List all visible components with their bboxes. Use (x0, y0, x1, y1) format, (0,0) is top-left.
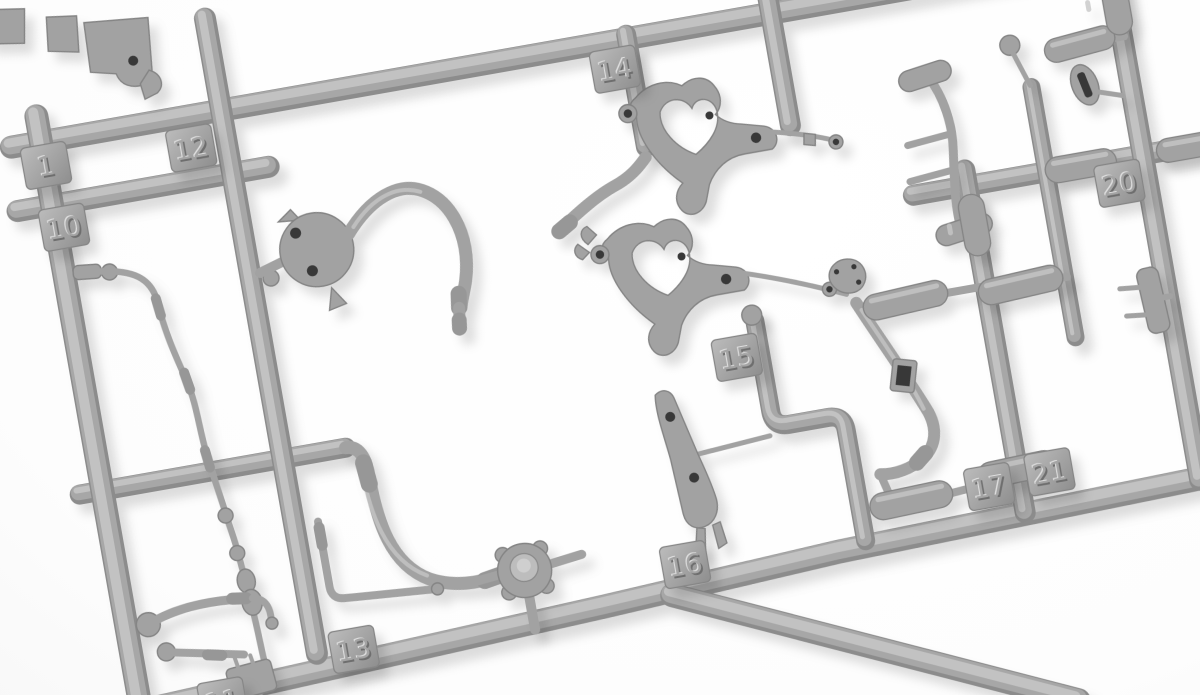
part-capsule (1042, 23, 1118, 65)
part-tag-13: 131313 (327, 625, 380, 674)
part-tag-16: 161616 (659, 540, 712, 589)
part-tag-15: 151515 (711, 333, 764, 382)
part-capsule (867, 478, 955, 522)
sprue-runner (752, 304, 866, 554)
part-top-right-disc (998, 33, 1030, 89)
part-flanged-disc-hose (250, 180, 479, 360)
part-j-pipe (346, 424, 505, 600)
parts-layer (0, 0, 1200, 695)
part-tag-17: 171717 (963, 462, 1016, 511)
part-tag-11: 111111 (196, 676, 249, 695)
part-corner-bracket (0, 0, 164, 125)
part-capsule (861, 278, 951, 323)
svg-text:20: 20 (1100, 166, 1140, 203)
part-tag-10: 101010 (38, 203, 91, 252)
part-tag-20: 202020 (1093, 159, 1146, 208)
runner-grid (0, 0, 1200, 695)
svg-text:12: 12 (171, 131, 211, 168)
photo-canvas: 1111010101212121313131414141515151616161… (0, 0, 1200, 695)
sprue-runner (1028, 83, 1075, 338)
svg-text:13: 13 (334, 632, 374, 669)
part-capsule (942, 192, 993, 260)
svg-text:21: 21 (1030, 455, 1070, 492)
part-hose-elbow (549, 157, 656, 231)
svg-text:16: 16 (665, 548, 705, 585)
svg-text:10: 10 (44, 210, 84, 247)
svg-text:15: 15 (717, 341, 757, 378)
part-tag-12: 121212 (165, 123, 218, 172)
part-bracket-upper (615, 54, 851, 224)
sprue-runner (1088, 0, 1200, 480)
svg-text:14: 14 (595, 52, 635, 89)
part-tag-1: 111 (20, 141, 73, 190)
sprue-frame: 1111010101212121313131414141515151616161… (0, 0, 1200, 695)
part-tag-14: 141414 (589, 45, 642, 94)
svg-text:17: 17 (969, 470, 1009, 507)
part-capsule (1155, 129, 1200, 164)
part-tag-21: 212121 (1023, 447, 1076, 496)
sprue-photo: 1111010101212121313131414141515151616161… (0, 0, 1200, 695)
part-top-right-oval (1064, 56, 1123, 111)
part-bracket-lower (571, 184, 852, 367)
